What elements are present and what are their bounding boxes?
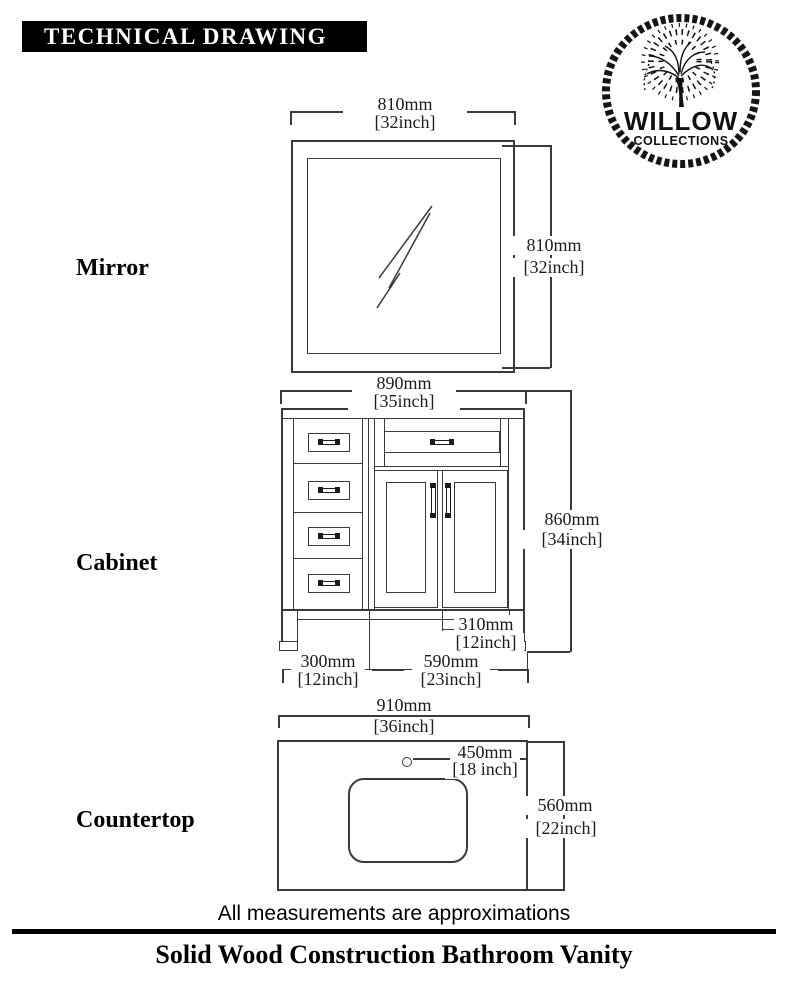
cabinet-top-rail	[283, 418, 523, 419]
page-title: TECHNICAL DRAWING	[22, 21, 367, 52]
dim-tick	[528, 715, 530, 728]
technical-drawing-page: TECHNICAL DRAWING WILLOW COLLECTIONS Mir	[0, 0, 788, 990]
footer-divider	[12, 929, 776, 934]
cabinet-foot	[279, 641, 298, 651]
countertop-depth-mm: 560mm	[523, 796, 607, 815]
mirror-height-inch: [32inch]	[506, 258, 602, 277]
mirror-section-label: Mirror	[76, 255, 149, 282]
dim-tick	[280, 390, 282, 404]
countertop-faucet-inch: [18 inch]	[445, 760, 525, 779]
countertop-width-inch: [36inch]	[350, 717, 458, 736]
extension-line	[528, 741, 563, 743]
cabinet-leg	[297, 611, 298, 641]
cabinet-drawer-width-inch: [12inch]	[284, 670, 372, 689]
cabinet-stile	[362, 418, 363, 609]
door-handle	[446, 483, 451, 518]
countertop-width-mm: 910mm	[352, 696, 456, 715]
drawer-handle	[318, 534, 340, 539]
cabinet-door-width-inch: [23inch]	[404, 670, 498, 689]
mirror-height-mm: 810mm	[510, 236, 598, 255]
cabinet-section-label: Cabinet	[76, 550, 157, 577]
extension-line	[527, 652, 528, 669]
drawer-handle	[318, 440, 340, 445]
door-handle	[431, 483, 436, 518]
dim-tick	[527, 669, 529, 683]
cabinet-width-inch: [35inch]	[348, 392, 460, 411]
door-panel	[454, 482, 496, 593]
faucet-hole	[402, 757, 412, 767]
door-panel	[386, 482, 426, 593]
cabinet-depth-inch: [12inch]	[448, 633, 524, 652]
dim-tick	[514, 111, 516, 125]
brand-subname: COLLECTIONS	[604, 135, 758, 148]
product-title: Solid Wood Construction Bathroom Vanity	[0, 940, 788, 970]
dim-tick	[525, 390, 527, 404]
extension-line	[502, 367, 550, 369]
dim-tick	[290, 111, 292, 125]
mirror-width-inch: [32inch]	[343, 113, 467, 132]
cabinet-stile	[500, 418, 501, 466]
drawer-separator	[293, 512, 362, 513]
cabinet-stile	[508, 418, 509, 609]
drawer-handle	[318, 488, 340, 493]
extension-line	[369, 611, 370, 670]
countertop-section-label: Countertop	[76, 807, 195, 834]
drawer-separator	[293, 558, 362, 559]
drawer-separator	[293, 463, 362, 464]
drawer-handle	[318, 581, 340, 586]
drawer-handle	[430, 440, 454, 445]
cabinet-leg	[281, 611, 283, 641]
measurements-note: All measurements are approximations	[0, 902, 788, 926]
extension-line	[442, 611, 443, 631]
header-title-bar: TECHNICAL DRAWING	[22, 21, 367, 52]
extension-line	[527, 651, 570, 653]
cabinet-stile	[293, 418, 294, 609]
dim-tick	[278, 715, 280, 728]
cabinet-height-mm: 860mm	[525, 510, 619, 529]
cabinet-rail	[374, 466, 508, 467]
brand-logo: WILLOW COLLECTIONS	[599, 12, 763, 170]
extension-line	[502, 145, 550, 147]
extension-line	[528, 889, 563, 891]
sink-cutout	[348, 778, 468, 863]
brand-name: WILLOW	[604, 108, 758, 134]
countertop-depth-inch: [22inch]	[520, 819, 612, 838]
mirror-reflection-icon	[330, 180, 450, 320]
dim-line	[563, 741, 565, 891]
cabinet-stile	[368, 418, 369, 609]
cabinet-height-inch: [34inch]	[521, 530, 623, 549]
